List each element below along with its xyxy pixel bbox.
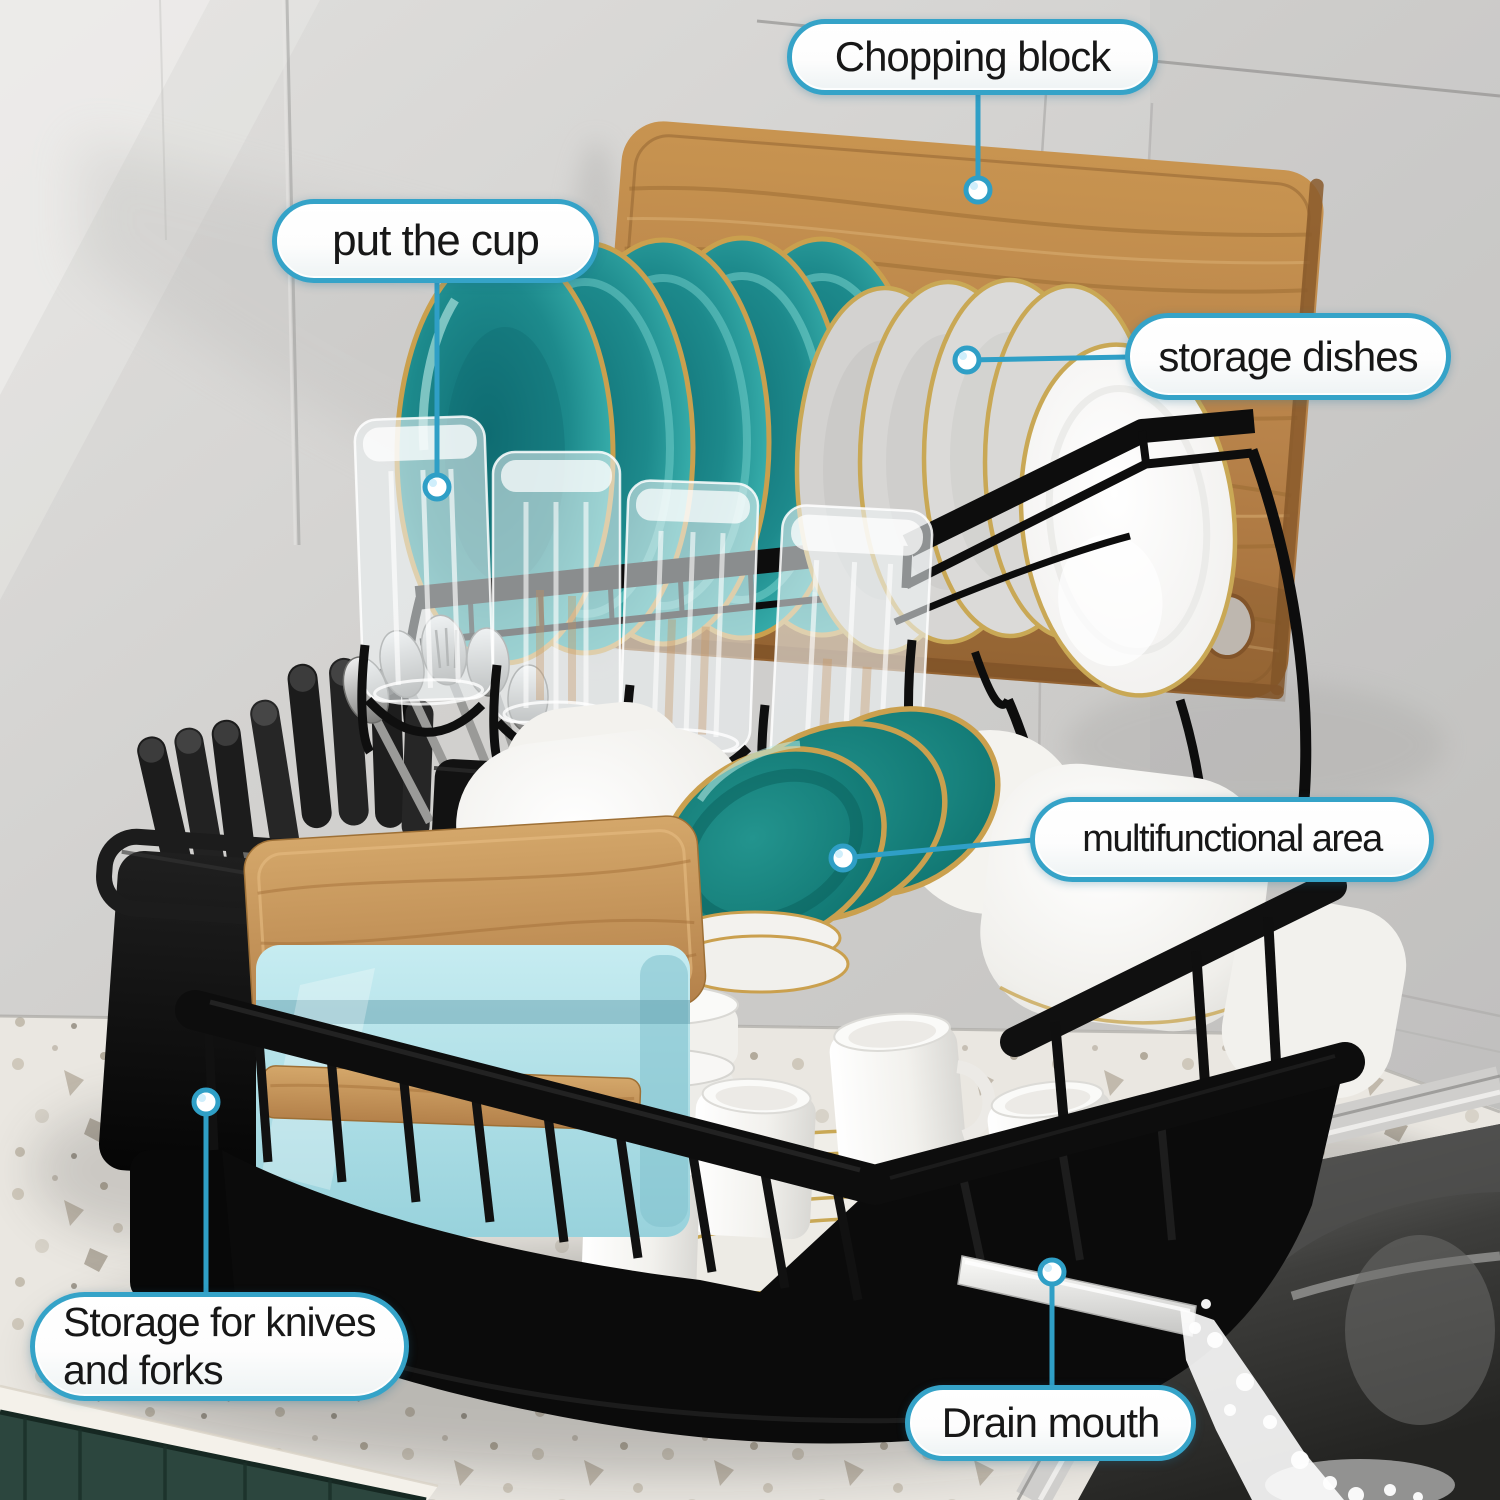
callout-chopping-block: Chopping block (787, 19, 1158, 95)
storage-dishes-leader-line (967, 357, 1128, 360)
multifunctional-area-dot (831, 846, 855, 870)
chopping-block-dot (966, 178, 990, 202)
scene-illustration (0, 0, 1500, 1500)
storage-dishes-dot (955, 348, 979, 372)
product-image: Chopping block put the cup storage dishe… (0, 0, 1500, 1500)
storage-knives-dot (194, 1090, 218, 1114)
callout-drain-mouth: Drain mouth (905, 1385, 1196, 1461)
callout-storage-dishes: storage dishes (1125, 313, 1451, 400)
callout-put-the-cup: put the cup (272, 199, 599, 283)
callout-multifunctional-area: multifunctional area (1030, 797, 1434, 882)
callout-storage-knives-forks: Storage for knives and forks (30, 1292, 409, 1401)
drain-mouth-dot (1040, 1260, 1064, 1284)
put-the-cup-dot (425, 475, 449, 499)
